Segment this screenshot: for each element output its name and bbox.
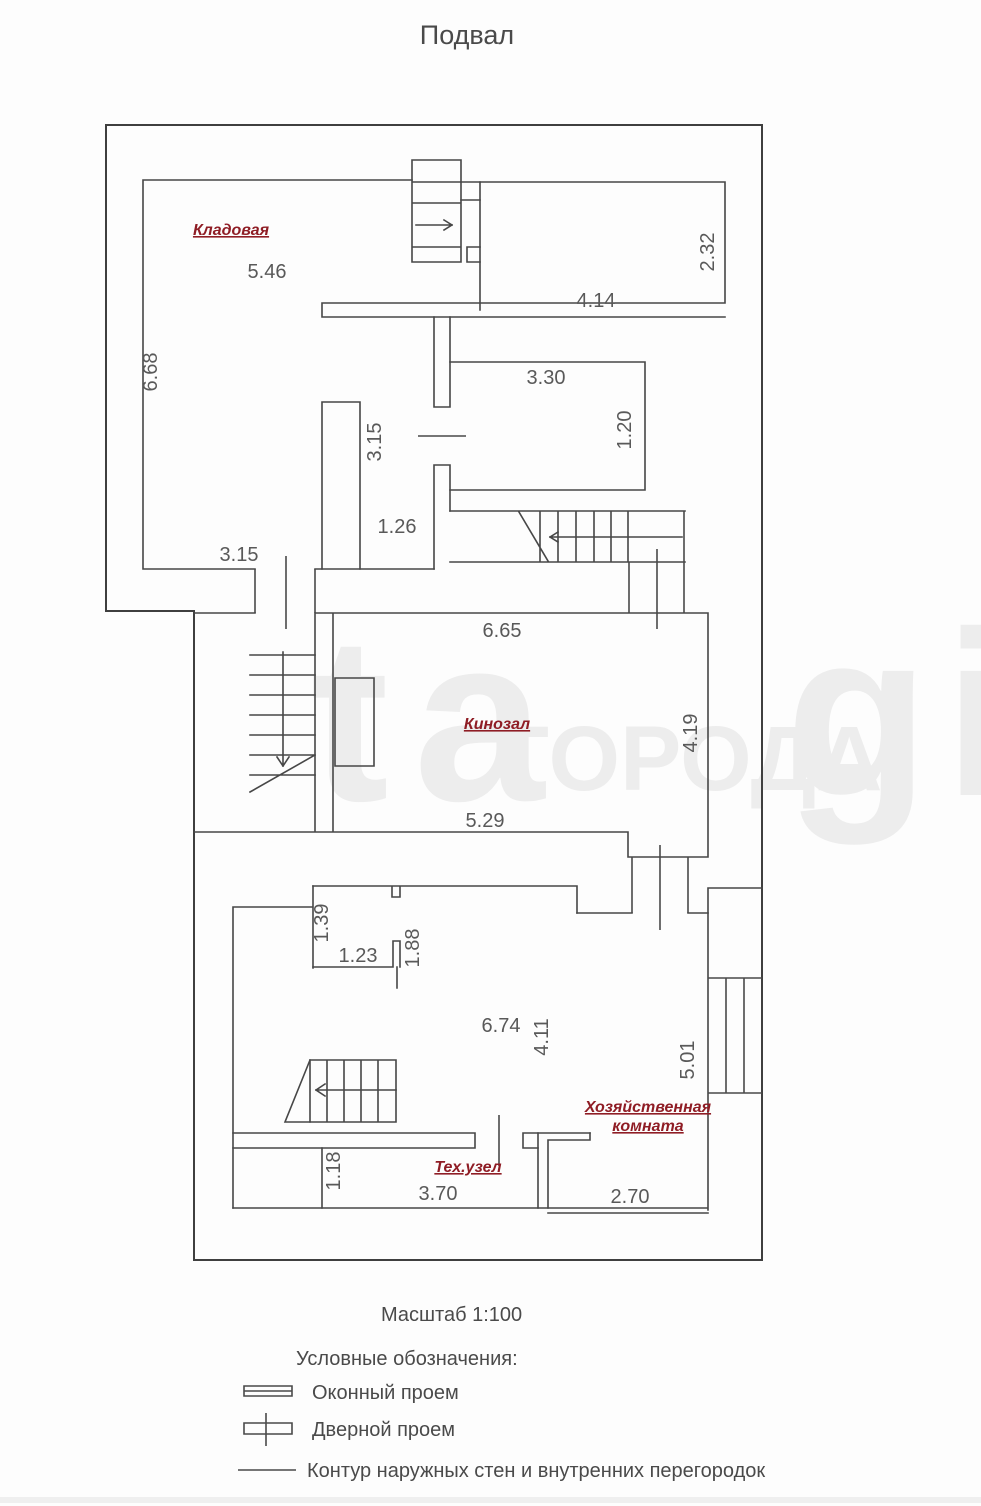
- dim-1-20: 1.20: [614, 411, 636, 450]
- page-title: Подвал: [420, 20, 514, 50]
- floorplan-drawing: ta ГОРОДА gi Подвал: [0, 0, 981, 1506]
- stairs-middle: [450, 511, 685, 562]
- dim-1-39: 1.39: [311, 904, 333, 943]
- dim-3-70: 3.70: [419, 1183, 458, 1205]
- dim-4-11: 4.11: [531, 1018, 553, 1055]
- stairs-top-exit: [412, 160, 480, 262]
- wall-room330-left: [434, 317, 450, 569]
- door-opening-kinozal-top: [629, 511, 684, 629]
- dim-4-19: 4.19: [680, 714, 702, 753]
- wall-room-top-right: [322, 182, 725, 317]
- dim-2-70: 2.70: [611, 1186, 650, 1208]
- legend-item-wall: Контур наружных стен и внутренних перего…: [307, 1460, 765, 1482]
- room-label-hoz-line1: Хозяйственная: [584, 1099, 712, 1116]
- legend-heading: Условные обозначения:: [296, 1348, 518, 1370]
- dim-3-15-horiz: 3.15: [220, 544, 259, 566]
- watermark: ta ГОРОДА gi: [311, 582, 981, 850]
- scale-note: Масштаб 1:100: [381, 1304, 522, 1326]
- dim-6-74: 6.74: [482, 1015, 521, 1037]
- dim-6-68: 6.68: [140, 353, 162, 392]
- scan-artifact-band: [0, 1497, 981, 1503]
- dim-5-29: 5.29: [466, 810, 505, 832]
- door-opening-kladovaya: [255, 556, 315, 629]
- room-label-tehuzel: Тех.узел: [434, 1159, 501, 1176]
- wall-kladovaya: [143, 180, 434, 569]
- dim-3-15-vert: 3.15: [364, 423, 386, 462]
- room-label-hoz-line2: комната: [612, 1118, 684, 1135]
- dim-4-14: 4.14: [577, 290, 616, 312]
- floorplan-page: ta ГОРОДА gi Подвал: [0, 0, 981, 1506]
- dim-1-88: 1.88: [402, 929, 424, 968]
- door-symbol: [244, 1413, 292, 1446]
- window-symbol: [244, 1386, 292, 1396]
- dim-1-18: 1.18: [323, 1152, 345, 1191]
- dim-5-46: 5.46: [248, 261, 287, 283]
- watermark-brand-right: gi: [786, 582, 981, 845]
- dim-1-26: 1.26: [378, 516, 417, 538]
- wall-corridor-partition: [322, 402, 360, 569]
- wall-tehuzel: [233, 1133, 590, 1208]
- room-label-kinozal: Кинозал: [464, 716, 530, 733]
- dim-5-01: 5.01: [677, 1041, 699, 1080]
- dim-1-23: 1.23: [339, 945, 378, 967]
- dim-2-32: 2.32: [697, 233, 719, 272]
- stairs-bottom: [285, 1060, 396, 1122]
- legend-item-window: Оконный проем: [312, 1382, 459, 1404]
- room-label-kladovaya: Кладовая: [193, 222, 270, 239]
- window-right-wall: [708, 978, 762, 1093]
- dim-3-30: 3.30: [527, 367, 566, 389]
- legend-item-door: Дверной проем: [312, 1419, 455, 1441]
- stairs-kinozal-hall: [250, 652, 315, 792]
- dim-6-65: 6.65: [483, 620, 522, 642]
